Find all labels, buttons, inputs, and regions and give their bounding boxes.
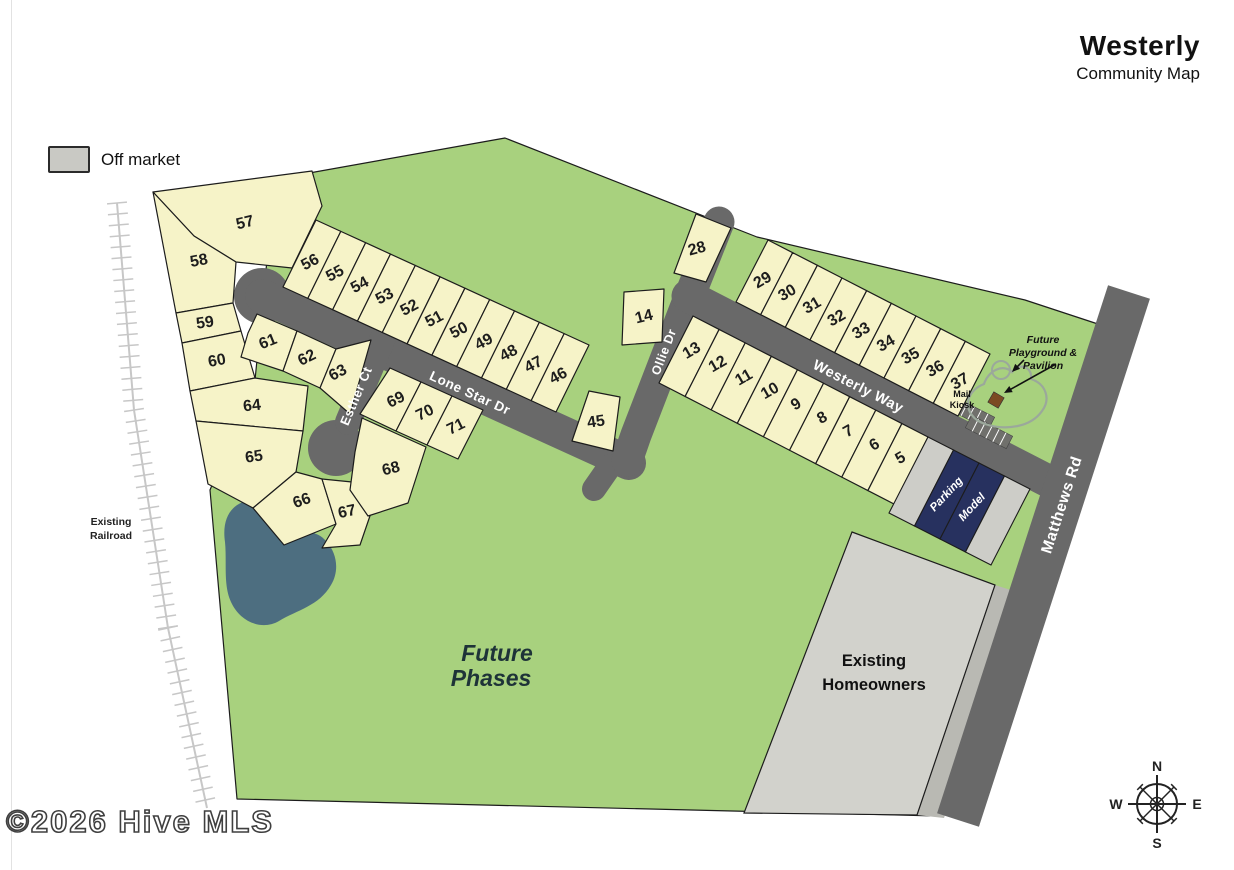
mail-kiosk-label: Mail bbox=[953, 389, 971, 399]
mail-kiosk-label: Kiosk bbox=[950, 400, 976, 410]
mls-watermark: ©2026 Hive MLS bbox=[6, 804, 274, 840]
lot-64-label: 64 bbox=[242, 397, 262, 416]
lot-58-label: 58 bbox=[189, 251, 210, 271]
existing-homeowners-label: Homeowners bbox=[822, 676, 926, 694]
playground-note-label: Playground & bbox=[1009, 347, 1077, 359]
lot-59-label: 59 bbox=[195, 313, 215, 332]
lot-67-label: 67 bbox=[337, 502, 358, 522]
existing-railroad-label: Existing bbox=[91, 516, 132, 528]
compass-n-label: N bbox=[1152, 758, 1162, 774]
compass-s-label: S bbox=[1152, 835, 1161, 851]
site-plan-svg: 5758596061626364656667686970715655545352… bbox=[0, 0, 1234, 870]
future-phases-label: Phases bbox=[451, 665, 532, 691]
road-lone-star-stub bbox=[594, 466, 610, 489]
future-phases-label: Future bbox=[461, 640, 533, 666]
existing-railroad-label: Railroad bbox=[90, 530, 132, 542]
compass-rose-icon: NSEW bbox=[1109, 758, 1201, 851]
existing-homeowners-label: Existing bbox=[842, 652, 906, 670]
lot-60-label: 60 bbox=[207, 351, 228, 371]
lot-45-label: 45 bbox=[586, 412, 606, 431]
compass-e-label: E bbox=[1192, 796, 1201, 812]
compass-w-label: W bbox=[1109, 796, 1123, 812]
community-map-page: Westerly Community Map Off market 575859… bbox=[0, 0, 1234, 870]
lot-65-label: 65 bbox=[244, 447, 264, 466]
playground-note-label: Pavilion bbox=[1023, 360, 1063, 372]
playground-note-label: Future bbox=[1027, 334, 1060, 346]
